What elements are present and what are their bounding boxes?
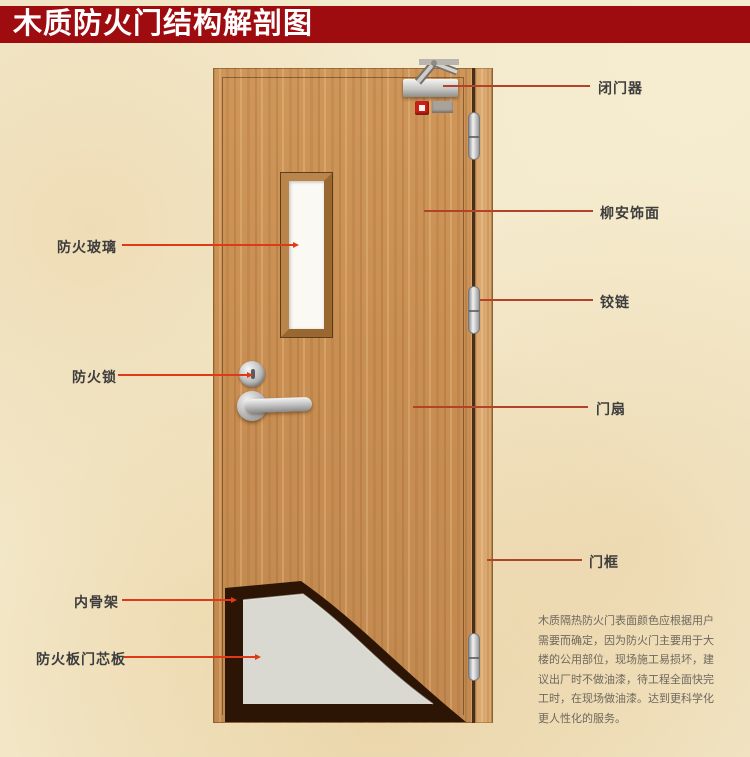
- label-lauan-veneer: 柳安饰面: [600, 203, 660, 223]
- hinge-seam: [469, 657, 479, 659]
- leader-line-door-frame: [487, 559, 582, 561]
- hinge-bottom: [468, 633, 480, 681]
- hinge-seam: [469, 310, 479, 312]
- description-line: 议出厂时不做油漆，待工程全面快完: [538, 671, 714, 691]
- door-frame-strip: [475, 68, 493, 723]
- label-door-leaf: 门扇: [596, 399, 626, 419]
- description-line: 需要而确定，因为防火门主要用于大: [538, 632, 714, 652]
- leader-line-fire-board-core: [124, 656, 256, 658]
- door-closer-body: [403, 79, 458, 97]
- leader-line-fire-glass: [122, 244, 294, 246]
- closer-pivot: [431, 60, 437, 66]
- leader-line-door-leaf: [413, 406, 588, 408]
- closer-link-icon: [434, 63, 457, 72]
- leader-line-hinge: [480, 299, 593, 301]
- door-handle-lever: [246, 397, 312, 413]
- leader-line-inner-skeleton: [122, 599, 232, 601]
- description-line: 更人性化的服务。: [538, 710, 714, 730]
- alarm-indicator: [415, 101, 429, 115]
- alarm-indicator-dot: [419, 105, 425, 111]
- label-door-frame: 门框: [589, 552, 619, 572]
- door-leaf-illustration: [213, 68, 473, 723]
- label-fire-glass: 防火玻璃: [57, 237, 117, 257]
- label-fire-board-core: 防火板门芯板: [36, 649, 126, 669]
- leader-line-fire-lock: [118, 374, 248, 376]
- label-inner-skeleton: 内骨架: [74, 592, 119, 612]
- leader-line-door-closer: [443, 85, 590, 87]
- diagram-background: 木质防火门结构解剖图: [0, 0, 750, 757]
- description-text: 木质隔热防火门表面颜色应根据用户 需要而确定，因为防火门主要用于大 楼的公用部位…: [538, 612, 714, 729]
- label-door-closer: 闭门器: [598, 78, 643, 98]
- leader-line-lauan-veneer: [424, 210, 593, 212]
- fire-glass-window: [281, 173, 332, 337]
- closer-top-bracket: [419, 59, 459, 65]
- hinge-seam: [469, 136, 479, 138]
- title-banner: 木质防火门结构解剖图: [0, 6, 750, 43]
- description-line: 木质隔热防火门表面颜色应根据用户: [538, 612, 714, 632]
- page-title: 木质防火门结构解剖图: [0, 6, 750, 43]
- closer-mount-plate: [432, 101, 453, 113]
- label-hinge: 铰链: [600, 292, 630, 312]
- description-line: 工时，在现场做油漆。达到更科学化: [538, 690, 714, 710]
- hinge-middle: [468, 286, 480, 334]
- description-line: 楼的公用部位，现场施工易损坏，建: [538, 651, 714, 671]
- hinge-top: [468, 112, 480, 160]
- closer-link-highlight: [434, 63, 457, 72]
- label-fire-lock: 防火锁: [72, 367, 117, 387]
